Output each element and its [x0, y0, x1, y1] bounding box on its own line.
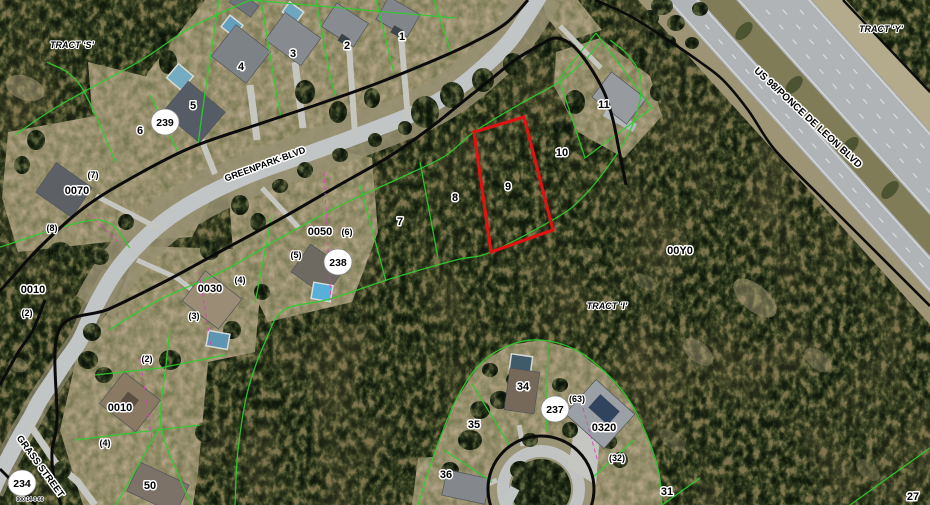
svg-text:237: 237 — [546, 404, 564, 416]
svg-text:0320: 0320 — [592, 422, 616, 434]
svg-text:(3): (3) — [189, 311, 200, 321]
svg-text:TRACT ‘S’: TRACT ‘S’ — [50, 40, 94, 50]
svg-text:6: 6 — [137, 125, 143, 137]
svg-text:000 14-0-60: 000 14-0-60 — [17, 497, 44, 503]
svg-text:0010: 0010 — [21, 284, 45, 296]
svg-text:(32): (32) — [609, 453, 625, 463]
svg-text:(7): (7) — [88, 170, 99, 180]
svg-text:(5): (5) — [291, 250, 302, 260]
svg-text:0010: 0010 — [108, 402, 132, 414]
svg-text:2: 2 — [344, 40, 350, 52]
svg-text:50: 50 — [144, 480, 156, 492]
svg-text:(2): (2) — [142, 354, 153, 364]
svg-text:00Y0: 00Y0 — [667, 245, 693, 257]
svg-text:TRACT ‘I’: TRACT ‘I’ — [587, 301, 628, 311]
svg-text:36: 36 — [440, 469, 452, 481]
svg-text:3: 3 — [290, 48, 296, 60]
svg-text:10: 10 — [556, 147, 568, 159]
svg-text:5: 5 — [190, 100, 196, 112]
svg-text:0070: 0070 — [65, 185, 89, 197]
svg-text:0030: 0030 — [198, 283, 222, 295]
svg-text:234: 234 — [13, 478, 31, 490]
svg-text:27: 27 — [907, 491, 919, 503]
svg-text:(4): (4) — [235, 275, 246, 285]
svg-text:7: 7 — [397, 216, 403, 228]
svg-text:9: 9 — [505, 181, 511, 193]
svg-text:1: 1 — [399, 31, 405, 43]
svg-text:(63): (63) — [569, 394, 585, 404]
svg-text:238: 238 — [329, 257, 347, 269]
svg-text:(8): (8) — [47, 223, 58, 233]
svg-text:35: 35 — [468, 419, 480, 431]
svg-text:(2): (2) — [22, 308, 33, 318]
svg-text:34: 34 — [517, 381, 530, 393]
svg-text:4: 4 — [238, 61, 245, 73]
svg-text:TRACT ‘Y’: TRACT ‘Y’ — [859, 24, 903, 34]
svg-text:(4): (4) — [100, 438, 111, 448]
svg-text:0050: 0050 — [308, 226, 332, 238]
svg-text:239: 239 — [156, 117, 174, 129]
svg-text:11: 11 — [598, 99, 610, 111]
svg-text:31: 31 — [661, 486, 673, 498]
svg-text:8: 8 — [452, 192, 458, 204]
svg-text:(6): (6) — [342, 227, 353, 237]
